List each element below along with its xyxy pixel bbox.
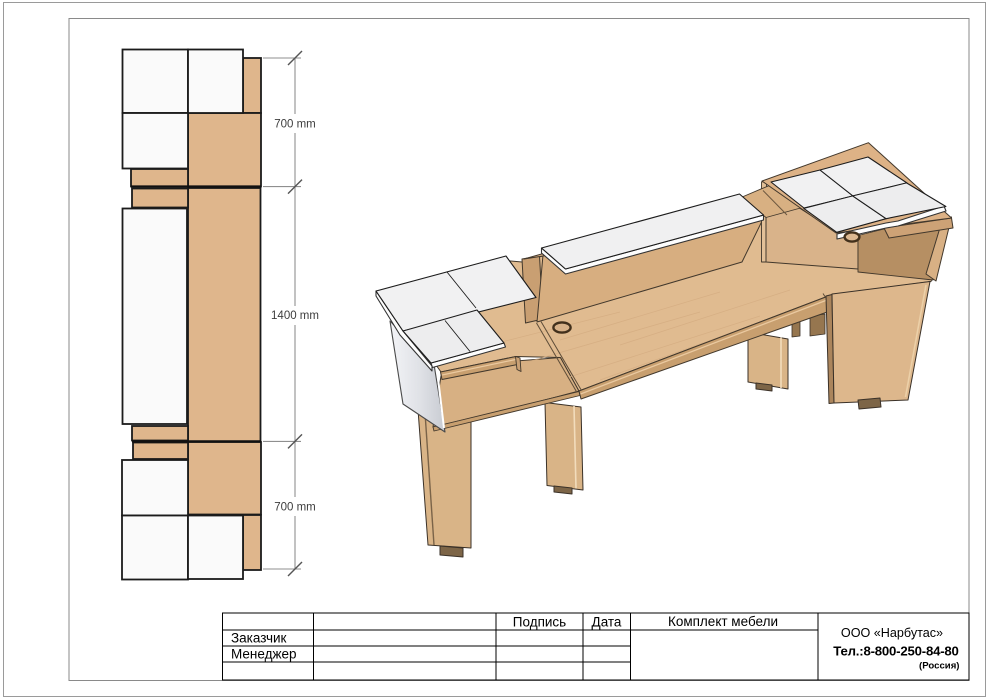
- svg-text:Комплект мебели: Комплект мебели: [668, 614, 778, 629]
- svg-text:Тел.:8-800-250-84-80: Тел.:8-800-250-84-80: [833, 644, 958, 659]
- svg-text:Дата: Дата: [592, 615, 622, 630]
- svg-text:700 mm: 700 mm: [274, 119, 316, 131]
- svg-text:1400 mm: 1400 mm: [271, 310, 319, 322]
- svg-text:Менеджер: Менеджер: [231, 647, 297, 662]
- svg-text:ООО «Нарбутас»: ООО «Нарбутас»: [841, 626, 943, 640]
- svg-text:Заказчик: Заказчик: [231, 631, 287, 646]
- svg-text:Подпись: Подпись: [513, 615, 566, 630]
- svg-text:700 mm: 700 mm: [274, 502, 316, 514]
- svg-text:(Россия): (Россия): [919, 661, 959, 672]
